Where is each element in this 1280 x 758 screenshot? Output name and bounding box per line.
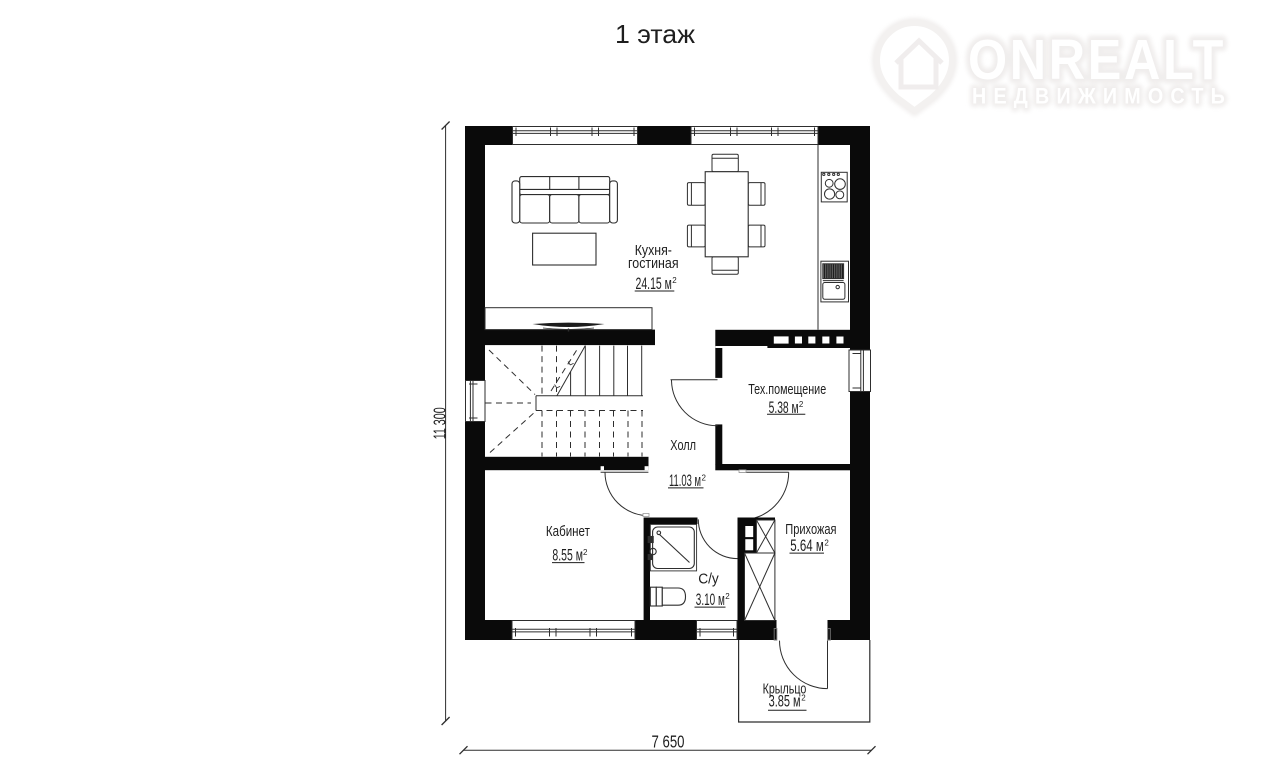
svg-text:С/у: С/у [698, 570, 719, 587]
svg-text:Тех.помещение: Тех.помещение [748, 382, 826, 398]
svg-text:2: 2 [725, 592, 730, 601]
svg-text:2: 2 [583, 548, 588, 557]
svg-text:Кабинет: Кабинет [546, 523, 590, 540]
svg-text:1 этаж: 1 этаж [615, 19, 696, 49]
svg-text:НЕДВИЖИМОСТЬ: НЕДВИЖИМОСТЬ [972, 84, 1232, 109]
svg-text:8.55 м: 8.55 м [552, 547, 583, 565]
svg-text:гостиная: гостиная [628, 256, 679, 272]
svg-text:11 300: 11 300 [429, 407, 449, 439]
svg-text:2: 2 [799, 400, 804, 409]
svg-text:2: 2 [702, 474, 707, 483]
svg-text:ONREALT: ONREALT [968, 28, 1226, 92]
svg-text:5.64 м: 5.64 м [790, 537, 824, 555]
svg-text:2: 2 [672, 276, 677, 285]
svg-text:3.10 м: 3.10 м [696, 591, 725, 609]
svg-text:Холл: Холл [670, 437, 696, 454]
svg-text:2: 2 [824, 538, 829, 547]
svg-text:3.85 м: 3.85 м [769, 693, 801, 711]
svg-text:Прихожая: Прихожая [785, 521, 836, 538]
svg-text:7 650: 7 650 [652, 732, 685, 752]
svg-text:2: 2 [801, 694, 806, 703]
